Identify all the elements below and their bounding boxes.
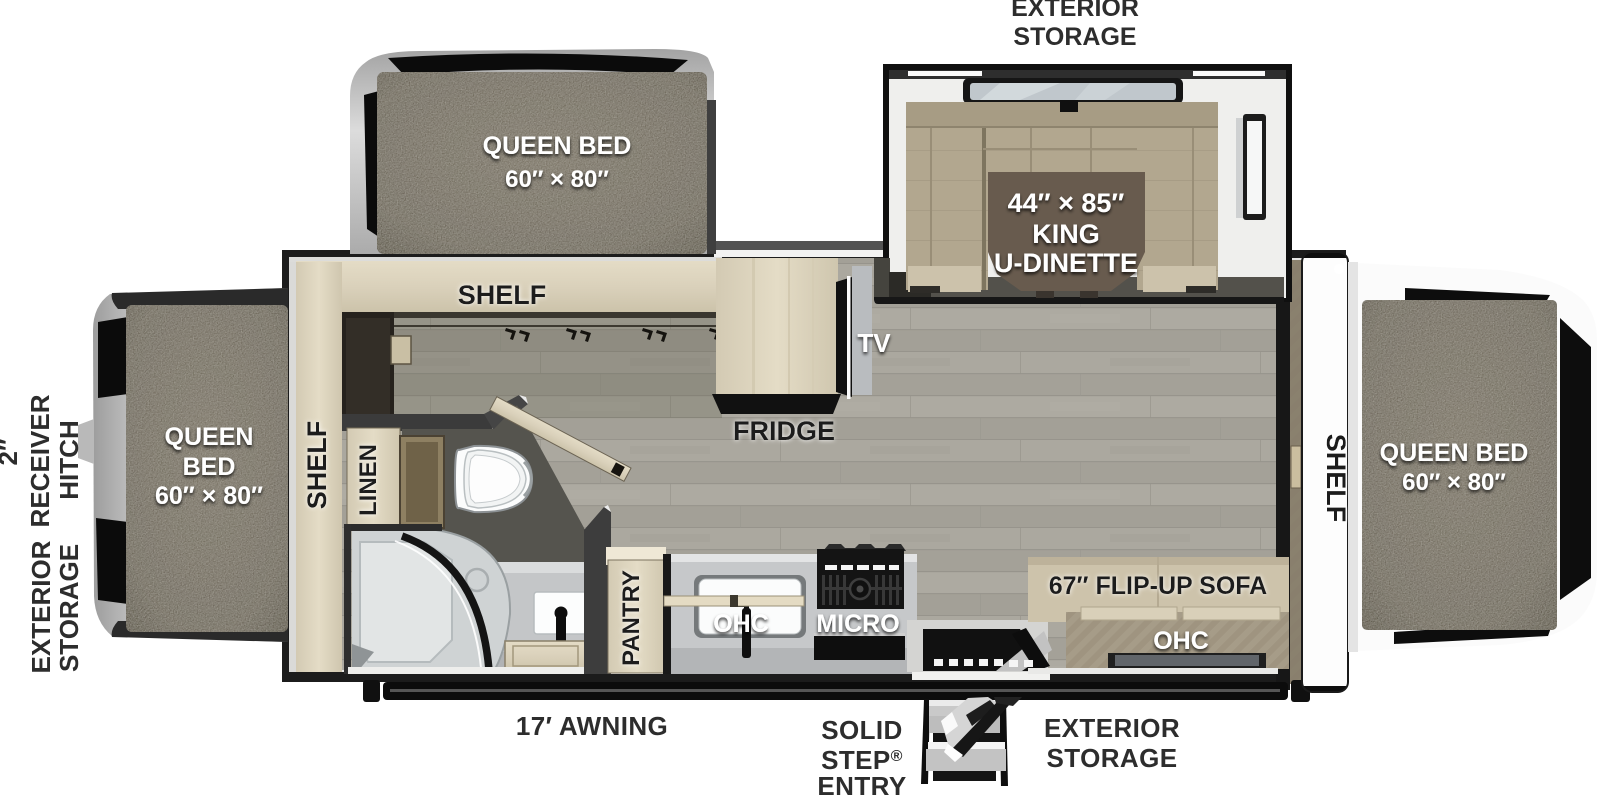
svg-text:SOLID: SOLID [821,715,902,745]
svg-text:BED: BED [183,453,236,481]
svg-text:FRIDGE: FRIDGE [733,416,835,446]
svg-text:OHC: OHC [1153,627,1209,655]
svg-text:ENTRY: ENTRY [817,771,906,796]
svg-text:RECEIVER: RECEIVER [25,394,55,527]
svg-text:QUEEN BED: QUEEN BED [483,132,632,160]
svg-text:60″ × 80″: 60″ × 80″ [1402,469,1506,496]
svg-text:KING: KING [1032,219,1100,249]
svg-text:EXTERIOR: EXTERIOR [26,540,56,673]
svg-text:2″: 2″ [0,439,23,466]
svg-text:67″ FLIP-UP SOFA: 67″ FLIP-UP SOFA [1049,572,1268,600]
svg-text:QUEEN: QUEEN [165,423,254,451]
svg-text:60″ × 80″: 60″ × 80″ [155,482,263,510]
svg-text:STORAGE: STORAGE [54,544,84,672]
svg-text:LINEN: LINEN [355,444,382,516]
svg-text:SHELF: SHELF [458,280,547,310]
svg-text:TV: TV [857,328,891,358]
svg-text:U-DINETTE: U-DINETTE [994,248,1138,278]
svg-text:MICRO: MICRO [816,610,899,638]
svg-text:HITCH: HITCH [54,420,84,499]
svg-text:EXTERIOR: EXTERIOR [1011,0,1139,22]
svg-text:SHELF: SHELF [302,421,332,510]
svg-text:OHC: OHC [713,610,769,638]
svg-text:60″ × 80″: 60″ × 80″ [505,166,609,193]
svg-text:17′ AWNING: 17′ AWNING [516,711,668,741]
svg-text:QUEEN BED: QUEEN BED [1380,439,1529,467]
svg-text:EXTERIOR: EXTERIOR [1044,713,1180,743]
svg-text:SHELF: SHELF [1321,434,1351,523]
svg-text:PANTRY: PANTRY [618,570,645,666]
svg-text:STORAGE: STORAGE [1047,743,1178,773]
svg-text:STORAGE: STORAGE [1013,23,1136,51]
svg-text:44″ × 85″: 44″ × 85″ [1008,188,1125,218]
